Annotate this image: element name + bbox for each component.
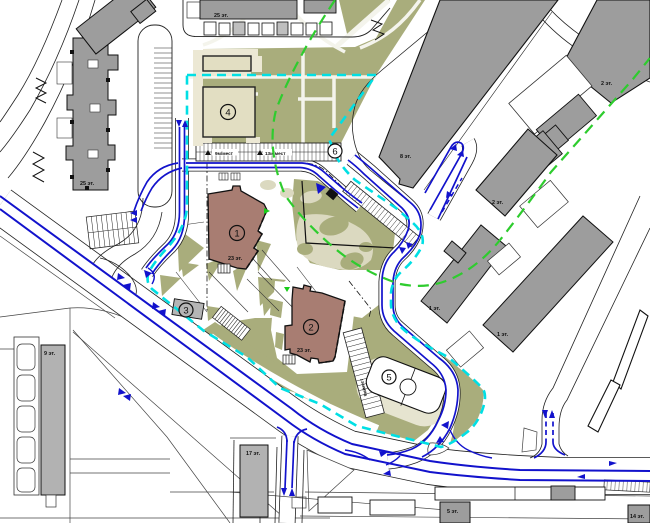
svg-text:5: 5: [386, 373, 391, 384]
svg-text:25 эт.: 25 эт.: [80, 181, 95, 187]
svg-text:17 эт.: 17 эт.: [246, 451, 261, 457]
svg-text:13м/мест: 13м/мест: [265, 151, 286, 156]
svg-text:25 эт.: 25 эт.: [214, 13, 229, 19]
svg-text:2 эт.: 2 эт.: [492, 200, 504, 206]
svg-text:2: 2: [308, 323, 313, 334]
svg-text:1 эт.: 1 эт.: [497, 332, 509, 338]
svg-text:4: 4: [225, 108, 230, 119]
svg-text:1: 1: [234, 229, 239, 240]
svg-text:9 эт.: 9 эт.: [44, 351, 56, 357]
svg-text:8 эт.: 8 эт.: [400, 154, 412, 160]
svg-text:1 эт.: 1 эт.: [429, 306, 441, 312]
svg-text:5 эт.: 5 эт.: [447, 509, 459, 515]
svg-text:23 эт.: 23 эт.: [228, 256, 243, 262]
svg-text:2 эт.: 2 эт.: [601, 81, 613, 87]
svg-text:14 эт.: 14 эт.: [630, 514, 645, 520]
svg-text:9м/мест: 9м/мест: [215, 151, 234, 156]
svg-text:3: 3: [183, 306, 188, 317]
svg-text:6: 6: [332, 147, 337, 158]
svg-text:23 эт.: 23 эт.: [297, 348, 312, 354]
